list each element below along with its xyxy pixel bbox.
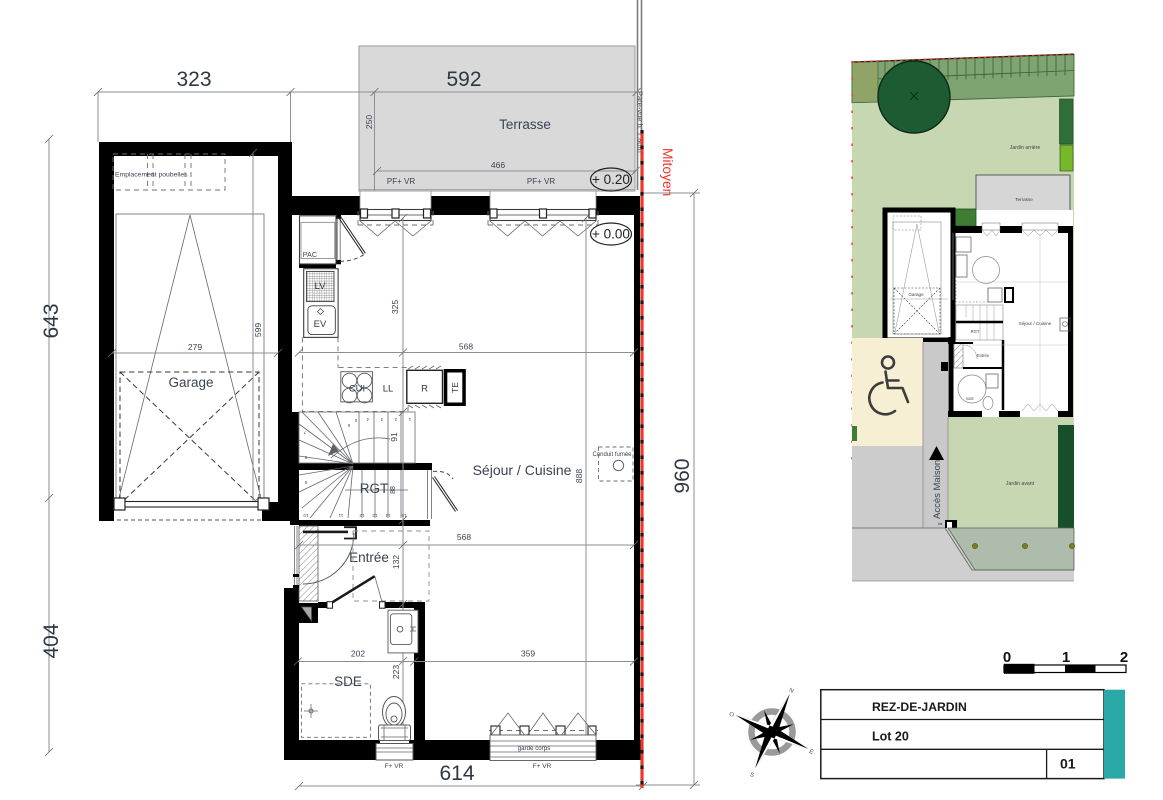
svg-text:LV: LV [315, 281, 327, 292]
svg-text:TE: TE [450, 382, 460, 393]
svg-text:F+ VR: F+ VR [385, 763, 404, 770]
svg-text:11: 11 [338, 513, 343, 518]
svg-text:Garage: Garage [168, 375, 213, 390]
svg-text:3: 3 [380, 417, 383, 422]
svg-text:643: 643 [40, 303, 63, 338]
svg-text:223: 223 [391, 665, 401, 679]
svg-text:202: 202 [351, 649, 365, 659]
svg-text:Conduit fumée: Conduit fumée [592, 452, 632, 458]
svg-text:91: 91 [389, 432, 399, 442]
svg-text:RGT: RGT [971, 329, 980, 334]
svg-text:Entrée: Entrée [977, 353, 990, 358]
svg-text:REZ-DE-JARDIN: REZ-DE-JARDIN [872, 700, 967, 714]
svg-text:888: 888 [574, 469, 584, 483]
svg-text:10: 10 [303, 513, 309, 518]
svg-text:PF+ VR: PF+ VR [387, 177, 415, 186]
svg-text:Séjour / Cuisine: Séjour / Cuisine [473, 462, 572, 478]
svg-text:2: 2 [394, 417, 397, 422]
svg-text:+ 0.00: + 0.00 [592, 227, 630, 242]
svg-text:01: 01 [1060, 756, 1076, 772]
svg-text:960: 960 [671, 458, 694, 493]
svg-text:279: 279 [188, 342, 202, 352]
svg-text:12: 12 [359, 513, 365, 518]
svg-text:88: 88 [390, 486, 397, 494]
svg-text:13: 13 [372, 513, 378, 518]
svg-text:Accès Maison: Accès Maison [932, 460, 943, 519]
svg-text:599: 599 [253, 323, 263, 337]
svg-text:R: R [421, 384, 428, 395]
svg-text:568: 568 [457, 532, 471, 542]
svg-text:325: 325 [390, 300, 400, 314]
svg-text:7: 7 [303, 430, 306, 435]
svg-text:8: 8 [304, 455, 307, 460]
svg-text:+ 0.20: + 0.20 [592, 172, 630, 187]
svg-text:PF+ VR: PF+ VR [527, 177, 555, 186]
svg-text:CUI: CUI [349, 384, 365, 395]
svg-text:4: 4 [366, 417, 369, 422]
svg-text:EV: EV [314, 319, 327, 330]
svg-text:5: 5 [354, 418, 357, 423]
svg-text:LL: LL [383, 384, 394, 395]
svg-text:Emplacement poubelles: Emplacement poubelles [115, 172, 188, 179]
svg-text:Mitoyen: Mitoyen [660, 148, 675, 196]
svg-text:323: 323 [176, 68, 211, 91]
svg-text:592: 592 [446, 68, 481, 91]
svg-text:2: 2 [1120, 649, 1128, 666]
svg-text:15: 15 [401, 513, 407, 518]
svg-text:1: 1 [1062, 649, 1070, 666]
svg-text:14: 14 [385, 513, 391, 518]
svg-text:SDE: SDE [334, 674, 362, 689]
svg-text:0: 0 [1003, 649, 1011, 666]
svg-text:Garage: Garage [908, 292, 924, 297]
svg-text:Jardin avant: Jardin avant [1006, 481, 1035, 487]
svg-text:SDE: SDE [966, 396, 975, 401]
svg-text:1: 1 [408, 417, 411, 422]
svg-text:9: 9 [304, 480, 307, 485]
svg-text:132: 132 [391, 555, 401, 569]
svg-text:614: 614 [439, 762, 474, 785]
svg-text:RGT: RGT [360, 481, 389, 496]
svg-text:PAC: PAC [303, 250, 317, 259]
svg-text:359: 359 [521, 649, 535, 659]
svg-text:Jardin arrière: Jardin arrière [1010, 145, 1041, 151]
svg-text:6: 6 [347, 423, 350, 428]
svg-text:250: 250 [364, 115, 374, 129]
svg-text:bal: bal [938, 522, 943, 526]
svg-text:404: 404 [40, 623, 63, 658]
svg-text:garde corps: garde corps [518, 745, 551, 752]
svg-text:466: 466 [491, 160, 505, 170]
svg-text:Terrasse: Terrasse [499, 117, 551, 132]
svg-text:Séjour / Cuisine: Séjour / Cuisine [1019, 321, 1052, 326]
svg-text:F+ VR: F+ VR [533, 763, 552, 770]
svg-text:Lot 20: Lot 20 [872, 730, 909, 744]
svg-text:Entrée: Entrée [349, 550, 389, 565]
svg-text:Terrasse: Terrasse [1015, 197, 1033, 202]
svg-text:568: 568 [459, 342, 473, 352]
